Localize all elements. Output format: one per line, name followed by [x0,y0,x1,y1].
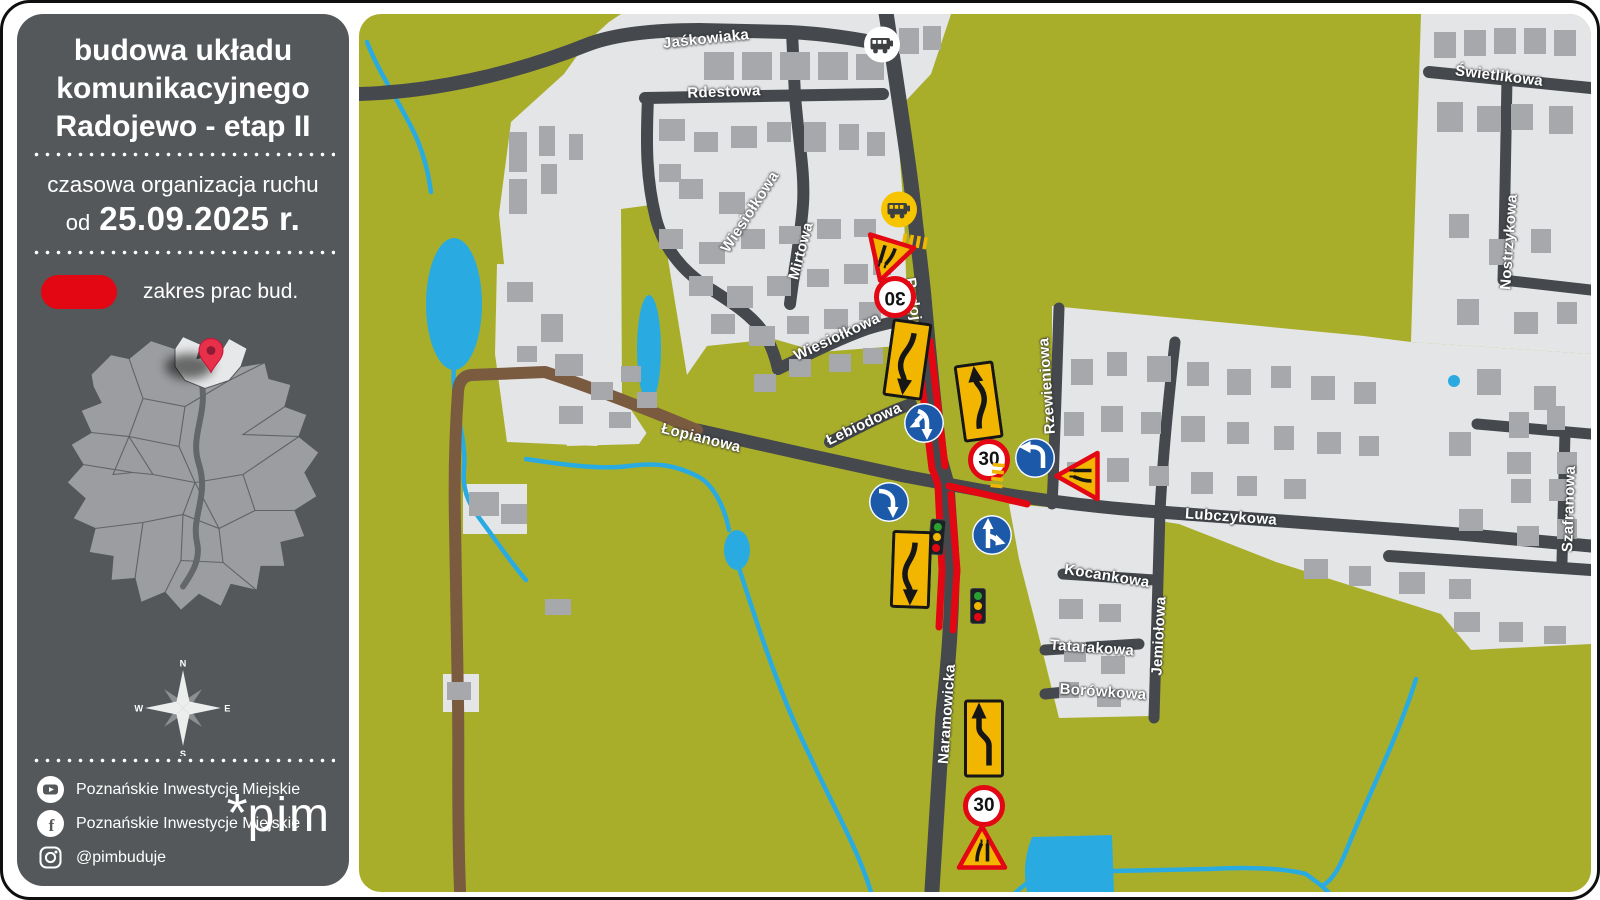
subtitle: czasowa organizacja ruchu [17,172,349,198]
title-line-1: budowa układu [17,32,349,70]
instagram-row[interactable]: @pimbuduje [37,844,300,871]
tlight-sign [970,588,986,624]
effective-date: od 25.09.2025 r. [17,200,349,238]
street-label: Świetlikowa [1454,62,1544,90]
street-label: Wiesiołkowa [717,168,782,255]
street-label: Wiesiołkowa [791,310,883,365]
poznan-locator-map [33,312,333,657]
traffic-map: JaśkowiakaRdestowaWiesiołkowaMirtowaWies… [359,14,1591,892]
plate-sign [953,360,1004,448]
street-label: Łebiodowa [824,399,905,449]
street-label: Tatarakowa [1049,637,1134,660]
compass-rose: N E S W [131,660,235,756]
logo-asterisk: * [227,786,248,840]
instagram-icon [37,844,64,871]
compass-w: W [134,704,143,714]
youtube-icon [37,776,64,803]
svg-text:f: f [49,816,55,835]
speed-sign: 30 [963,785,1005,827]
title-line-3: Radojewo - etap II [17,108,349,146]
date-prefix: od [66,210,90,236]
street-label: Rdestowa [687,82,761,102]
facebook-icon: f [37,810,64,837]
legend-label: zakres prac bud. [143,280,298,304]
poster-canvas: budowa układu komunikacyjnego Radojewo -… [0,0,1600,900]
compass-s: S [180,749,186,756]
title-line-2: komunikacyjnego [17,70,349,108]
street-label: Lubczykowa [1184,505,1277,528]
logo-text: pim [248,788,331,843]
speed-sign: 30 [874,276,916,318]
instagram-label: @pimbuduje [76,849,166,867]
map-labels-layer: JaśkowiakaRdestowaWiesiołkowaMirtowaWies… [359,14,1591,892]
triangle-sign [956,824,1008,877]
dotted-divider [31,152,335,157]
compass-e: E [224,704,230,714]
blue-sign [904,403,944,443]
blue-sign [869,482,909,522]
legend-row: zakres prac bud. [41,274,339,310]
crosswalk-sign [984,461,1006,491]
street-label: Kocankowa [1063,561,1151,591]
triangle-sign [1054,450,1107,502]
compass-n: N [180,660,187,668]
blue-sign [1015,438,1055,478]
bus-sign [864,26,901,68]
street-label: Mirtowa [785,220,817,281]
street-label: Borówkowa [1059,680,1147,703]
bus-sign [881,191,918,233]
date-value: 25.09.2025 r. [99,200,300,238]
works-extent-swatch [41,275,117,309]
info-sidebar: budowa układu komunikacyjnego Radojewo -… [17,14,349,886]
street-label: Jaśkowiaka [662,26,750,52]
dotted-divider [31,758,335,763]
blue-sign [972,515,1012,555]
street-label: Nostrzykowa [1497,194,1521,291]
page-title: budowa układu komunikacyjnego Radojewo -… [17,32,349,145]
street-label: Naramowicka [935,664,959,765]
street-label: Rzewieniowa [1035,337,1059,435]
plate-sign [964,700,1004,783]
street-label: Łopianowa [660,420,743,456]
street-label: Szafranowa [1559,466,1579,553]
pim-logo: * pim [227,788,331,843]
plate-sign [881,318,932,406]
street-label: Jemiołowa [1148,596,1169,676]
plate-sign [890,530,933,614]
dotted-divider [31,250,335,255]
